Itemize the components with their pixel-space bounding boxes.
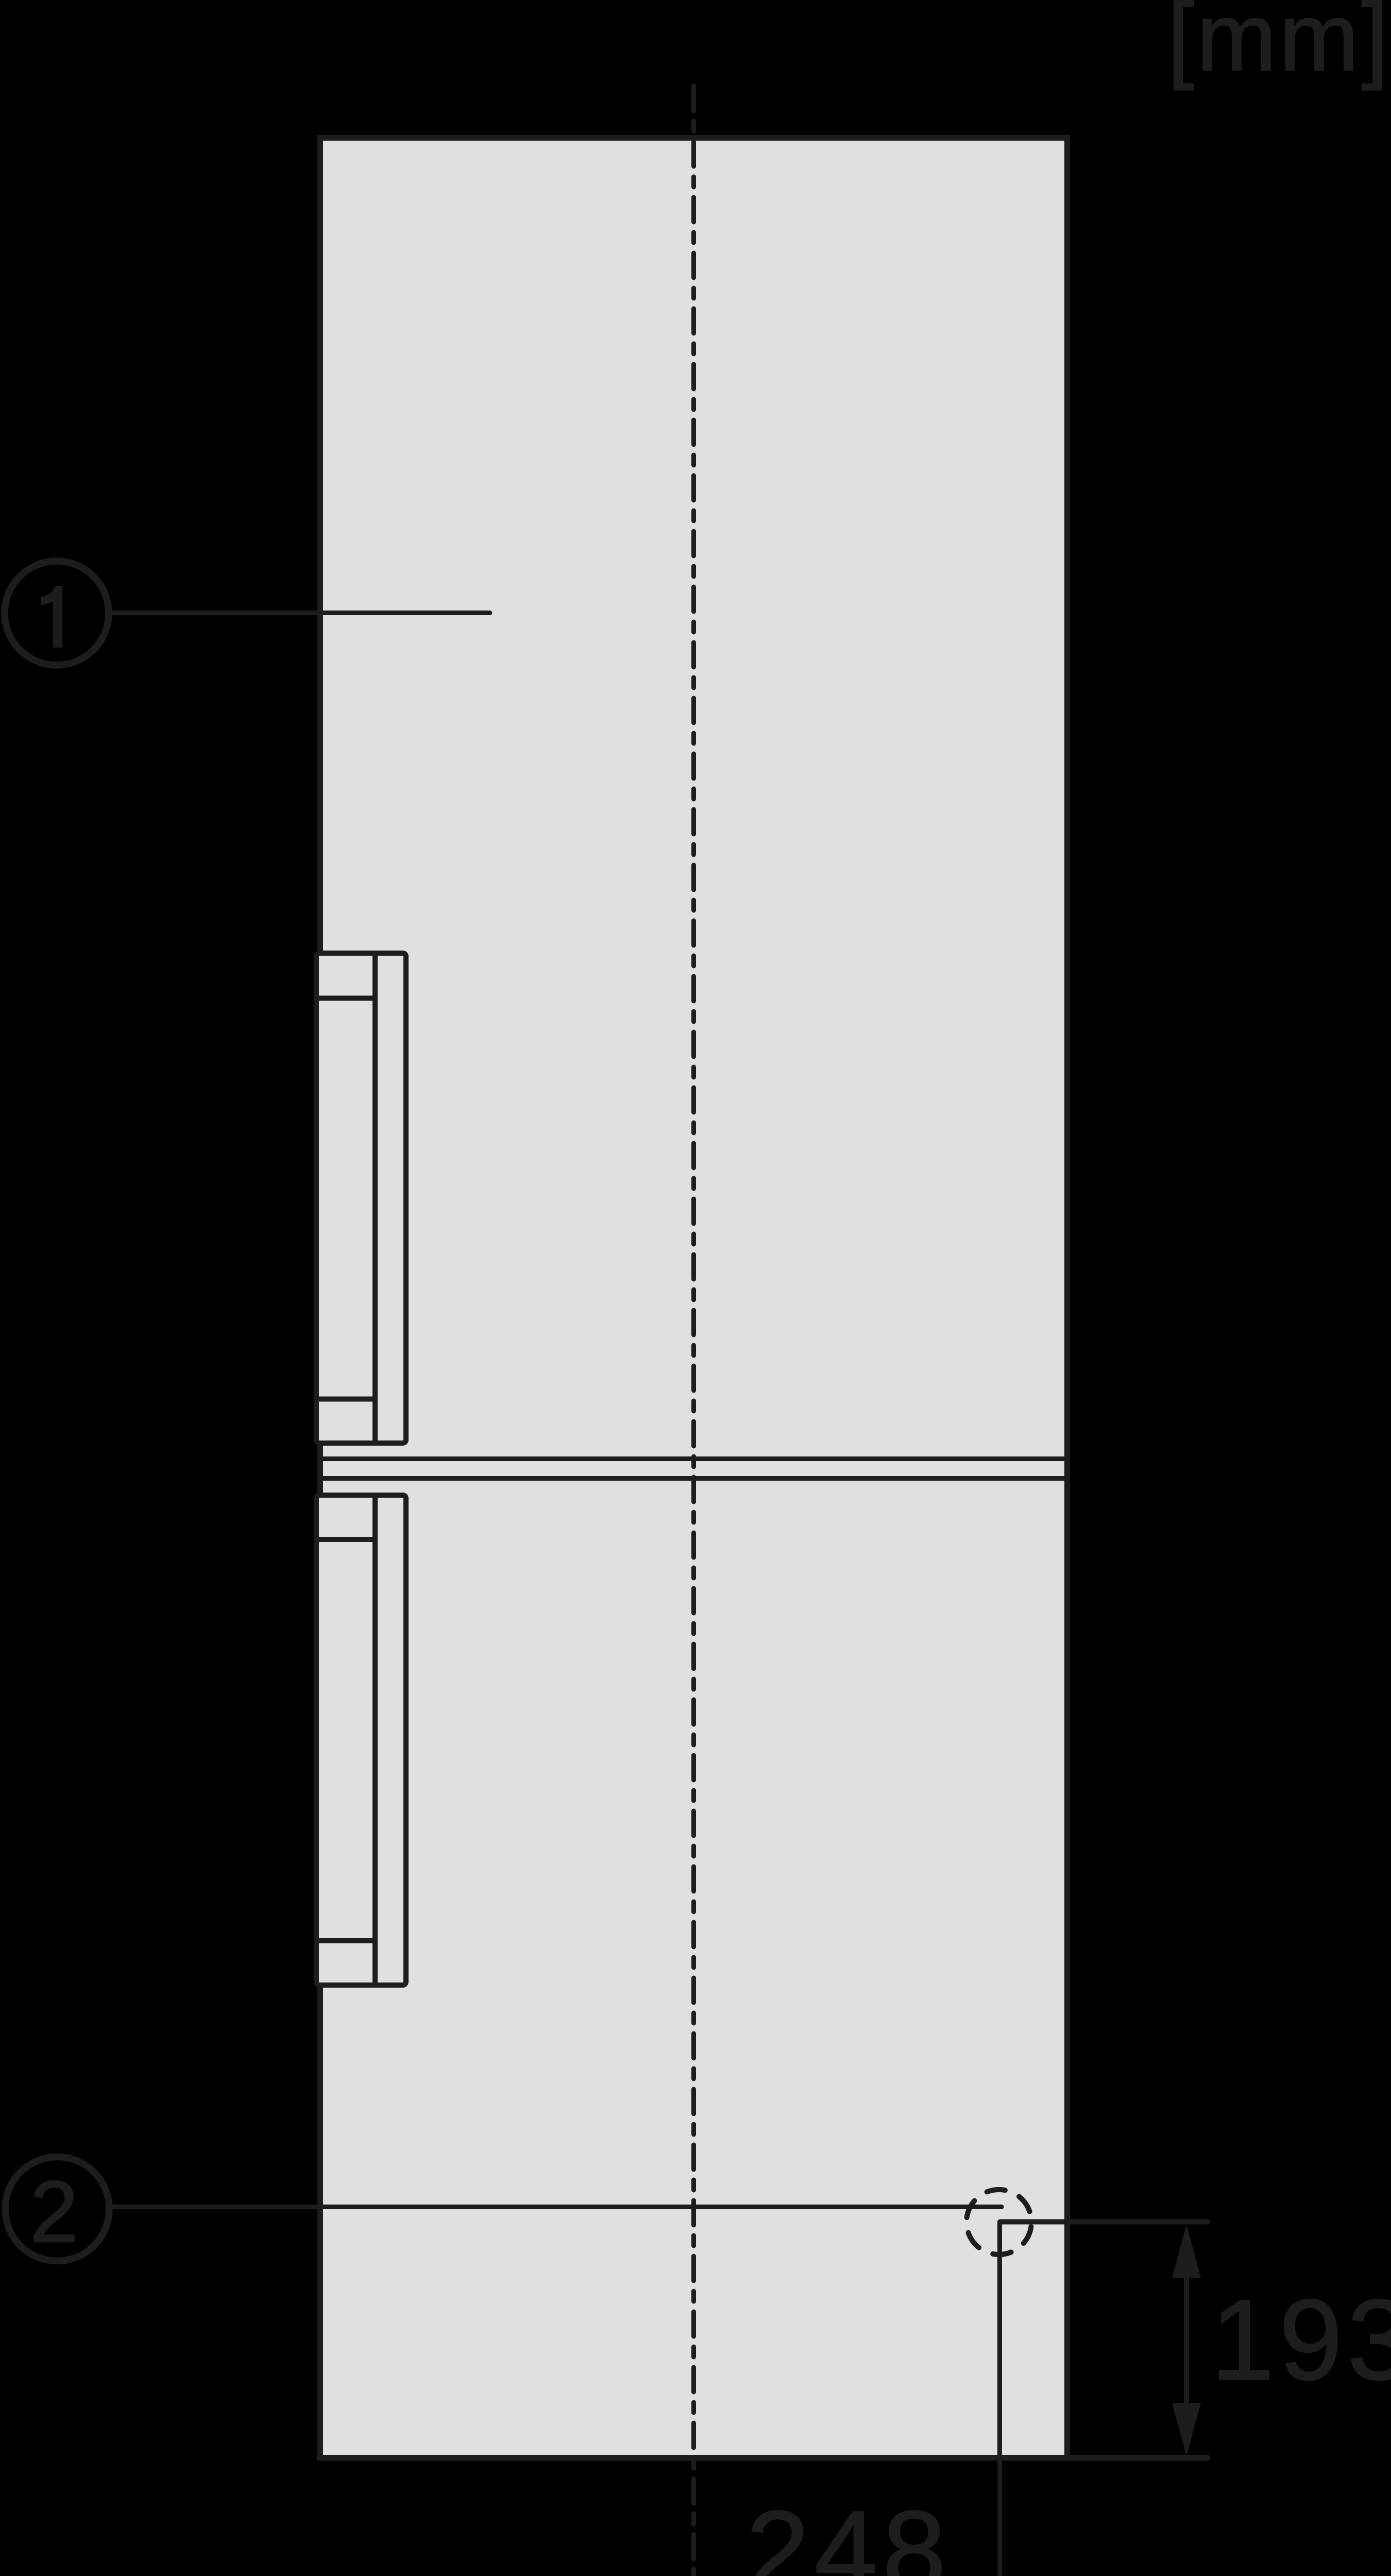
svg-text:248: 248 — [746, 2487, 951, 2576]
svg-text:[mm]: [mm] — [1167, 0, 1390, 91]
svg-text:2: 2 — [30, 2163, 78, 2260]
svg-text:193: 193 — [1211, 2276, 1391, 2404]
